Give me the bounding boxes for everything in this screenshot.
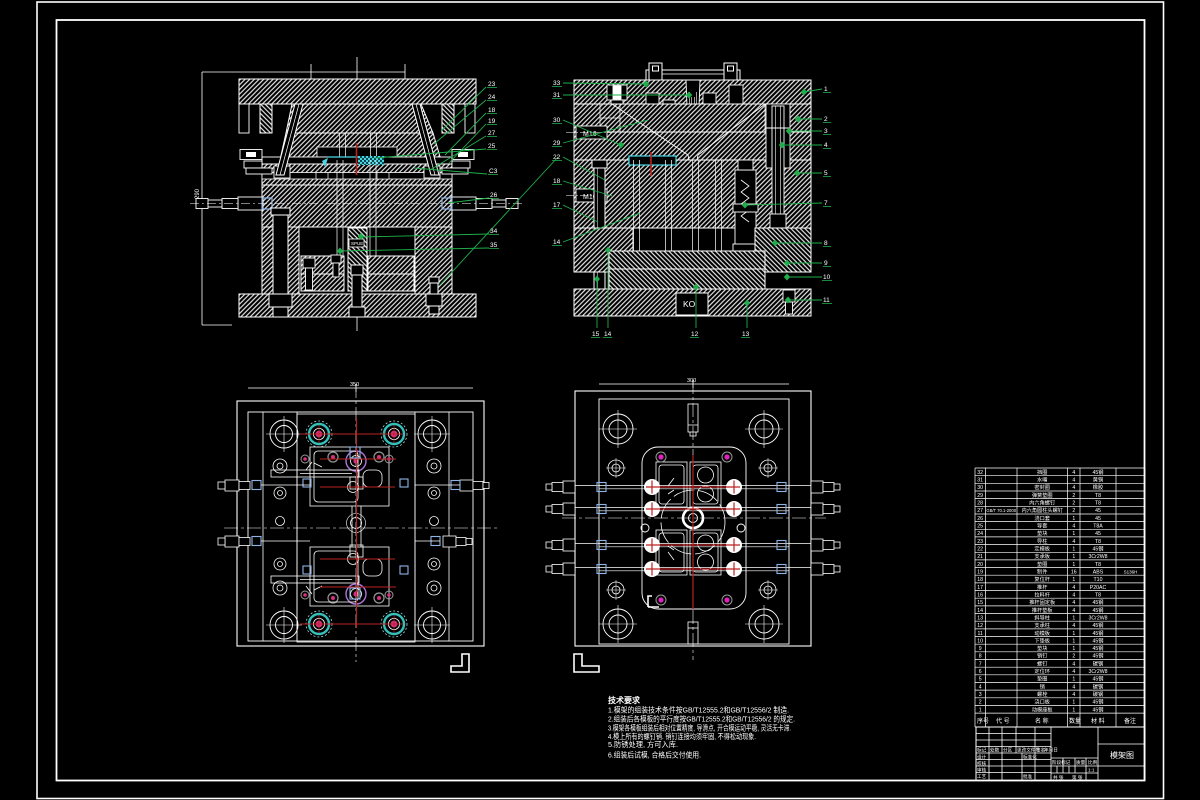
svg-text:1: 1	[1072, 516, 1075, 522]
svg-text:18: 18	[977, 577, 983, 583]
svg-text:4: 4	[1072, 524, 1075, 530]
svg-text:T8: T8	[1095, 562, 1101, 568]
svg-text:3Cr2W8: 3Cr2W8	[1088, 554, 1107, 560]
svg-text:4: 4	[979, 684, 982, 690]
svg-text:2: 2	[1072, 501, 1075, 507]
svg-text:32: 32	[977, 470, 983, 476]
svg-text:数量: 数量	[1069, 717, 1081, 725]
svg-text:4: 4	[1072, 470, 1075, 476]
svg-text:14: 14	[553, 239, 561, 246]
svg-text:22: 22	[977, 547, 983, 553]
svg-text:密封圈: 密封圈	[1034, 483, 1050, 491]
svg-text:校核: 校核	[977, 760, 987, 767]
svg-text:黄铜: 黄铜	[1093, 476, 1103, 484]
svg-text:分区: 分区	[1003, 747, 1013, 754]
svg-text:4: 4	[1072, 593, 1075, 599]
svg-text:垫块: 垫块	[1037, 644, 1048, 652]
svg-text:11: 11	[978, 631, 983, 637]
svg-text:水嘴: 水嘴	[1037, 476, 1047, 484]
svg-text:序号: 序号	[977, 717, 989, 725]
svg-text:2: 2	[979, 700, 982, 706]
svg-text:3Cr2W8: 3Cr2W8	[1088, 669, 1107, 675]
svg-text:1: 1	[1072, 547, 1075, 553]
svg-text:复位杆: 复位杆	[1034, 575, 1050, 583]
svg-text:1: 1	[1072, 554, 1075, 560]
svg-text:碳钢: 碳钢	[1093, 682, 1103, 690]
svg-text:17: 17	[977, 585, 983, 591]
svg-text:5: 5	[824, 170, 828, 177]
svg-text:模架图: 模架图	[1110, 750, 1134, 760]
svg-text:16: 16	[1071, 570, 1077, 576]
svg-text:27: 27	[488, 130, 496, 137]
svg-text:P20AC: P20AC	[1090, 585, 1107, 591]
svg-text:17: 17	[553, 202, 561, 209]
svg-text:7: 7	[824, 200, 828, 207]
svg-text:名 称: 名 称	[1035, 717, 1049, 725]
svg-text:拉料杆: 拉料杆	[1034, 591, 1050, 599]
svg-text:9: 9	[979, 646, 982, 652]
svg-text:45钢: 45钢	[1093, 644, 1104, 652]
svg-text:2.组装后各模板的平行度按GB/T12555.2和GB/T1: 2.组装后各模板的平行度按GB/T12555.2和GB/T12556/2 的规定…	[608, 714, 795, 724]
svg-text:35: 35	[490, 242, 498, 249]
svg-text:代 号: 代 号	[996, 717, 1010, 725]
svg-text:27: 27	[977, 508, 983, 514]
svg-text:2: 2	[1072, 493, 1075, 499]
svg-text:45: 45	[1095, 508, 1101, 514]
svg-text:6: 6	[979, 669, 982, 675]
svg-text:KO: KO	[683, 299, 696, 309]
svg-text:4: 4	[1072, 600, 1075, 606]
svg-text:动模座板: 动模座板	[1032, 705, 1054, 713]
svg-text:3: 3	[824, 128, 828, 135]
svg-text:9: 9	[824, 260, 828, 267]
svg-text:1: 1	[1072, 700, 1075, 706]
svg-text:批准: 批准	[1023, 773, 1033, 780]
svg-text:4: 4	[1072, 692, 1075, 698]
svg-text:15: 15	[592, 331, 600, 338]
svg-text:工艺: 工艺	[977, 774, 987, 779]
svg-text:1: 1	[1072, 646, 1075, 652]
svg-text:45钢: 45钢	[1093, 675, 1104, 683]
svg-text:销钉: 销钉	[1037, 652, 1047, 660]
svg-text:350: 350	[350, 382, 359, 388]
svg-text:支承板: 支承板	[1034, 552, 1050, 560]
svg-text:12: 12	[691, 331, 699, 338]
svg-text:碳钢: 碳钢	[1093, 659, 1103, 667]
svg-text:4: 4	[1072, 669, 1075, 675]
svg-text:T8: T8	[1095, 493, 1101, 499]
svg-text:SPUE: SPUE	[351, 241, 363, 246]
svg-text:45钢: 45钢	[1093, 629, 1104, 637]
svg-text:19: 19	[977, 570, 983, 576]
svg-text:12: 12	[977, 623, 983, 629]
svg-text:1: 1	[1072, 677, 1075, 683]
svg-text:2: 2	[824, 116, 828, 123]
svg-text:浇口板: 浇口板	[1034, 698, 1050, 706]
svg-text:1: 1	[1072, 531, 1075, 537]
svg-text:4: 4	[1072, 485, 1075, 491]
svg-text:31: 31	[553, 92, 561, 99]
svg-text:3Cr2W8: 3Cr2W8	[1088, 615, 1107, 621]
svg-text:ABS: ABS	[1093, 570, 1104, 576]
svg-text:碳钢: 碳钢	[1093, 690, 1103, 698]
svg-text:导柱: 导柱	[1037, 537, 1047, 545]
svg-text:垫圈: 垫圈	[1037, 560, 1047, 568]
svg-text:2: 2	[1072, 654, 1075, 660]
svg-text:C3: C3	[489, 168, 498, 175]
svg-text:T8: T8	[1095, 539, 1101, 545]
svg-text:45钢: 45钢	[1093, 698, 1104, 706]
svg-text:33: 33	[553, 80, 561, 87]
svg-text:设计: 设计	[977, 754, 987, 761]
svg-text:1: 1	[979, 707, 982, 713]
svg-text:15: 15	[977, 600, 983, 606]
svg-text:导套: 导套	[1037, 522, 1048, 530]
svg-text:GB/T 70.1-2000: GB/T 70.1-2000	[986, 508, 1016, 513]
svg-text:4: 4	[1072, 539, 1075, 545]
svg-text:T8: T8	[1095, 501, 1101, 507]
svg-text:浇口套: 浇口套	[1034, 514, 1050, 522]
svg-text:第 张: 第 张	[1072, 774, 1083, 781]
svg-text:7: 7	[979, 661, 982, 667]
svg-text:4: 4	[1072, 623, 1075, 629]
svg-text:45钢: 45钢	[1093, 636, 1104, 644]
svg-text:审核: 审核	[977, 767, 987, 774]
svg-text:300: 300	[687, 378, 696, 384]
svg-text:1: 1	[1072, 577, 1075, 583]
svg-text:销: 销	[1040, 682, 1045, 690]
svg-text:3: 3	[979, 692, 982, 698]
svg-text:30: 30	[553, 117, 561, 124]
svg-text:23: 23	[977, 539, 983, 545]
svg-text:45钢: 45钢	[1093, 606, 1104, 614]
svg-text:内六角圆柱头螺钉: 内六角圆柱头螺钉	[1021, 506, 1063, 514]
svg-text:4: 4	[1072, 478, 1075, 484]
svg-text:23: 23	[488, 81, 496, 88]
svg-text:定模板: 定模板	[1034, 545, 1050, 553]
svg-text:10: 10	[823, 274, 831, 281]
svg-text:14: 14	[977, 608, 983, 614]
svg-text:24: 24	[977, 531, 983, 537]
svg-text:45钢: 45钢	[1093, 545, 1104, 553]
svg-text:备注: 备注	[1124, 717, 1136, 725]
svg-text:垫块: 垫块	[1037, 529, 1048, 537]
svg-text:4: 4	[1072, 608, 1075, 614]
svg-text:21: 21	[977, 554, 983, 560]
svg-text:弹簧垫圈: 弹簧垫圈	[1032, 491, 1053, 499]
svg-text:45: 45	[1095, 531, 1101, 537]
svg-text:年月日: 年月日	[1044, 747, 1058, 754]
svg-text:S136H: S136H	[1124, 570, 1138, 575]
svg-text:5: 5	[979, 677, 982, 683]
svg-text:13: 13	[977, 615, 983, 621]
svg-text:31: 31	[977, 478, 983, 484]
svg-text:14: 14	[604, 331, 612, 338]
svg-text:3.模架各模板组装后相对位置精度, 导滑点, 开合模运动平稳: 3.模架各模板组装后相对位置精度, 导滑点, 开合模运动平稳, 灵活无卡滞.	[608, 723, 791, 733]
svg-text:45钢: 45钢	[1093, 621, 1104, 629]
svg-text:1: 1	[1072, 631, 1075, 637]
svg-text:25: 25	[977, 524, 983, 530]
svg-text:斜导柱: 斜导柱	[1034, 613, 1050, 621]
svg-text:2: 2	[1072, 508, 1075, 514]
svg-text:处数: 处数	[990, 747, 1000, 754]
svg-text:螺栓: 螺栓	[1037, 690, 1048, 698]
svg-text:阶段标记: 阶段标记	[1052, 759, 1071, 766]
svg-text:34: 34	[490, 228, 498, 235]
svg-text:垫圈: 垫圈	[1037, 675, 1047, 683]
svg-text:4: 4	[824, 142, 828, 149]
svg-text:45钢: 45钢	[1093, 705, 1104, 713]
svg-text:18: 18	[553, 178, 561, 185]
svg-text:1: 1	[1072, 562, 1075, 568]
svg-text:技术要求: 技术要求	[608, 695, 641, 705]
svg-text:T8A: T8A	[1093, 524, 1103, 530]
svg-text:标记: 标记	[977, 747, 987, 754]
svg-text:18: 18	[488, 107, 496, 114]
svg-text:T10: T10	[1094, 577, 1103, 583]
svg-text:1:1: 1:1	[1088, 768, 1095, 773]
svg-text:定位环: 定位环	[1034, 667, 1050, 675]
svg-text:8: 8	[824, 240, 828, 247]
svg-text:4: 4	[1072, 661, 1075, 667]
svg-text:28: 28	[977, 501, 983, 507]
svg-text:10: 10	[977, 638, 983, 644]
svg-text:推杆: 推杆	[1037, 583, 1047, 591]
svg-text:290: 290	[195, 188, 201, 199]
svg-text:挡圈: 挡圈	[1037, 468, 1047, 476]
svg-text:8: 8	[979, 654, 982, 660]
svg-text:4: 4	[1072, 684, 1075, 690]
svg-text:1.模架的组装技术条件按GB/T12555.2和GB/T12: 1.模架的组装技术条件按GB/T12555.2和GB/T12556/2 制造.	[608, 705, 789, 715]
svg-text:45钢: 45钢	[1093, 598, 1104, 606]
svg-text:标准化: 标准化	[1023, 754, 1037, 761]
svg-text:橡胶: 橡胶	[1093, 483, 1103, 491]
svg-text:6.组装后试模, 合格后交付使用.: 6.组装后试模, 合格后交付使用.	[608, 750, 701, 760]
svg-text:螺钉: 螺钉	[1037, 659, 1047, 667]
svg-text:11: 11	[823, 297, 830, 304]
svg-text:26: 26	[977, 516, 983, 522]
svg-text:30: 30	[977, 485, 983, 491]
svg-text:制件: 制件	[1037, 568, 1047, 576]
svg-text:4: 4	[1072, 585, 1075, 591]
svg-text:动模板: 动模板	[1034, 629, 1050, 637]
svg-text:1: 1	[1072, 615, 1075, 621]
svg-text:45钢: 45钢	[1093, 652, 1104, 660]
svg-text:质量: 质量	[1076, 759, 1086, 766]
svg-text:1: 1	[1072, 707, 1075, 713]
svg-text:支承柱: 支承柱	[1034, 621, 1050, 629]
svg-text:45: 45	[1095, 516, 1101, 522]
svg-text:29: 29	[553, 140, 561, 147]
svg-text:1: 1	[1072, 638, 1075, 644]
svg-text:比例: 比例	[1088, 759, 1098, 766]
svg-text:共 张: 共 张	[1053, 774, 1064, 781]
svg-text:下垫板: 下垫板	[1034, 636, 1050, 644]
svg-text:T8: T8	[1095, 593, 1101, 599]
svg-text:29: 29	[977, 493, 983, 499]
svg-text:1: 1	[824, 86, 828, 93]
svg-text:22: 22	[553, 154, 561, 161]
svg-text:26: 26	[490, 192, 498, 199]
svg-text:16: 16	[977, 593, 983, 599]
svg-text:推杆固定板: 推杆固定板	[1029, 598, 1056, 606]
svg-text:13: 13	[742, 331, 750, 338]
svg-text:5.防锈处理, 方可入库.: 5.防锈处理, 方可入库.	[608, 739, 678, 749]
svg-text:20: 20	[977, 562, 983, 568]
svg-text:材 料: 材 料	[1091, 717, 1105, 725]
svg-text:内六角螺钉: 内六角螺钉	[1029, 499, 1055, 507]
svg-text:45钢: 45钢	[1093, 468, 1104, 476]
svg-text:25: 25	[488, 143, 496, 150]
svg-text:19: 19	[488, 118, 496, 125]
svg-text:24: 24	[488, 94, 496, 101]
svg-text:推杆垫板: 推杆垫板	[1032, 606, 1054, 614]
